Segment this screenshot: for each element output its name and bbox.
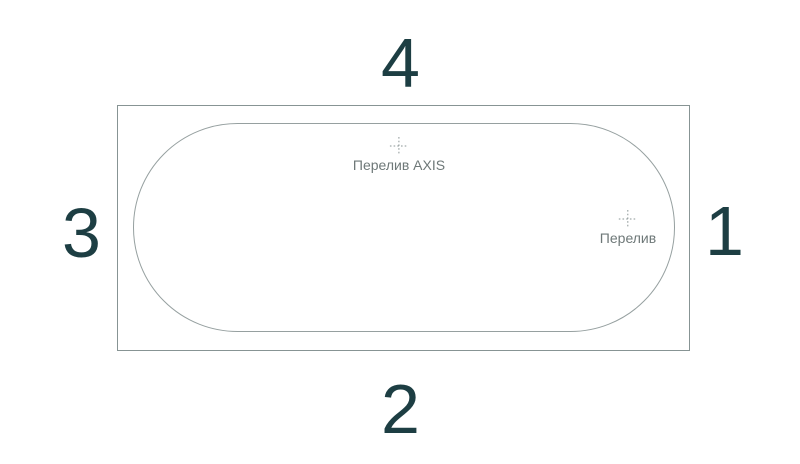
overflow-axis-marker: Перелив AXIS [353,136,445,174]
bathtub-top-view-diagram: 4 2 3 1 Перелив AXIS Перелив [0,0,800,464]
side-number-bottom: 2 [381,374,419,444]
crosshair-icon [618,209,638,229]
side-number-right: 1 [705,196,743,266]
overflow-label: Перелив [600,230,656,247]
crosshair-icon [389,136,409,156]
overflow-axis-label: Перелив AXIS [353,157,445,174]
overflow-marker: Перелив [600,209,656,247]
side-number-top: 4 [381,28,419,98]
side-number-left: 3 [62,198,100,268]
